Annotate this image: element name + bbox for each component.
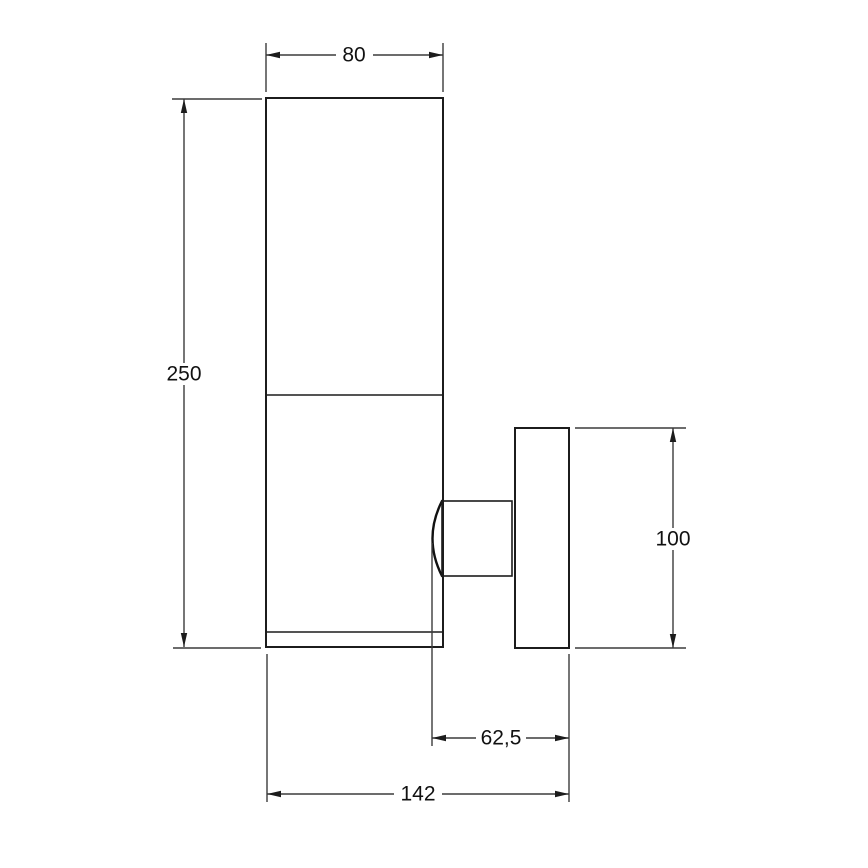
arm-joint-arc [433, 501, 443, 576]
arrowhead-left-icon [267, 791, 281, 797]
dimension-width-80: 80 [266, 43, 443, 92]
dimension-label-plate-height: 100 [655, 528, 690, 551]
arrowhead-right-icon [555, 735, 569, 741]
arrowhead-up-icon [670, 428, 676, 442]
mounting-arm-outline [442, 501, 512, 576]
arrowhead-down-icon [181, 633, 187, 647]
fixture-outline [266, 98, 569, 648]
dimension-height-250: 250 [160, 99, 262, 648]
drawing-canvas: 80 250 100 [0, 0, 868, 868]
wall-plate-outline [515, 428, 569, 648]
dimension-label-arm-depth: 62,5 [481, 727, 522, 750]
dimension-label-total-depth: 142 [400, 783, 435, 806]
dimension-arm-depth-62-5: 62,5 [432, 543, 569, 802]
arrowhead-right-icon [555, 791, 569, 797]
arrowhead-down-icon [670, 634, 676, 648]
dimension-label-height: 250 [166, 363, 201, 386]
arrowhead-up-icon [181, 99, 187, 113]
technical-drawing: 80 250 100 [0, 0, 868, 868]
arrowhead-left-icon [432, 735, 446, 741]
dimension-plate-height-100: 100 [575, 428, 697, 648]
arrowhead-left-icon [266, 52, 280, 58]
lamp-body-outline [266, 98, 443, 647]
dimension-label-width: 80 [342, 44, 365, 67]
arrowhead-right-icon [429, 52, 443, 58]
